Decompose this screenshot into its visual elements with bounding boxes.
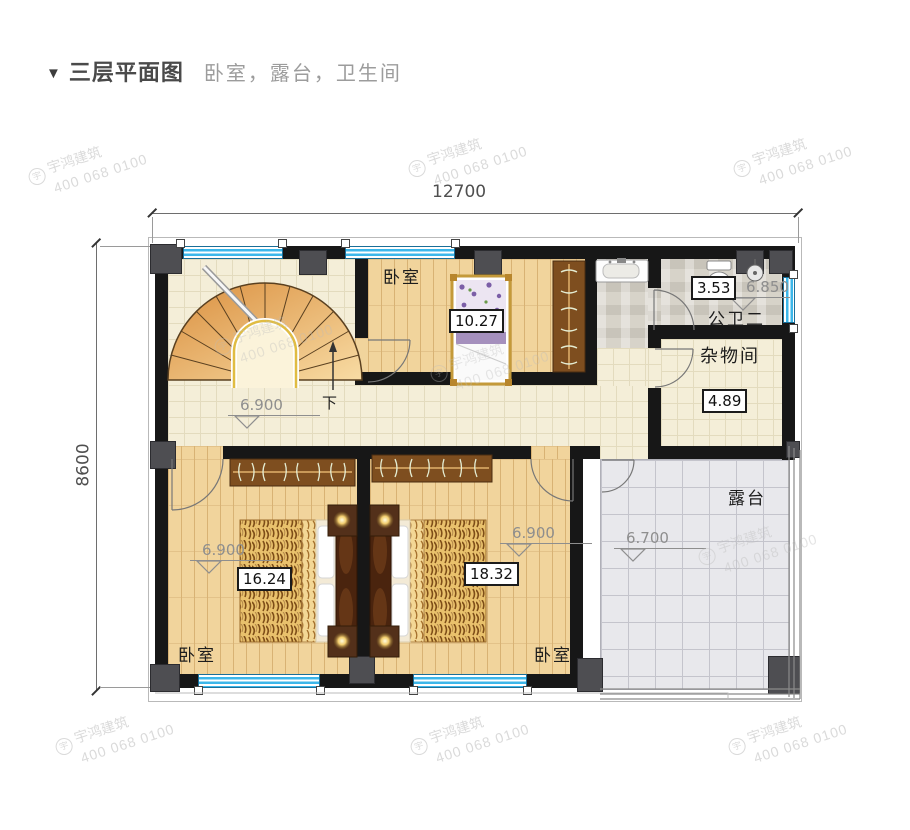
window-tick [789,270,798,279]
watermark: 宇宇鸿建筑 400 068 0100 [25,131,149,203]
title-marker-icon: ▼ [46,65,61,82]
window-tick [278,239,287,248]
wall-bedroomse-right [570,446,583,674]
floor-corridor [597,348,648,386]
window-tick [316,686,325,695]
wall-storage-left-top [648,339,661,348]
door-opening [168,446,223,459]
window [183,246,283,259]
window-tick [789,324,798,333]
room-label-storage: 杂物间 [700,342,760,368]
level-value: 6.900 [240,396,283,414]
level-marker-hall: 6.900 [228,396,320,416]
stair-direction-label: 下 [322,392,337,413]
pillar [474,250,502,275]
wall-storage-south [648,446,782,459]
dimension-line-top [152,213,798,214]
door-opening [648,348,661,388]
pillar [768,656,800,694]
pillar [786,441,800,458]
page-title: 三层平面图 [69,60,184,85]
dimension-extension [100,246,152,247]
watermark-logo-icon: 宇 [408,736,429,757]
watermark: 宇宇鸿建筑 400 068 0100 [52,701,176,773]
area-value-bathroom: 3.53 [691,276,736,300]
pillar [577,658,603,692]
door-opening [600,446,648,459]
watermark-logo-icon: 宇 [26,166,47,187]
window-tick [176,239,185,248]
room-label-bedroom-se: 卧室 [534,641,572,666]
window-tick [409,686,418,695]
watermark: 宇宇鸿建筑 400 068 0100 [407,701,531,773]
area-value-bedroom-sw: 16.24 [237,567,292,591]
pillar [150,664,180,692]
watermark: 宇宇鸿建筑 400 068 0100 [725,701,849,773]
dimension-extension [152,217,153,243]
wall-corridor-south [223,446,531,459]
dimension-line-left [96,243,97,691]
floorplan-page: { "header": { "marker": "▼", "title": "三… [0,0,910,830]
window-tick [451,239,460,248]
window-tick [341,239,350,248]
pillar [349,656,375,684]
watermark-logo-icon: 宇 [406,158,427,179]
wall-bedroom-divider [357,459,370,674]
watermark: 宇宇鸿建筑 400 068 0100 [730,123,854,195]
window-tick [194,686,203,695]
wall-wardrobe-vestibule [585,259,597,372]
window-tick [523,686,532,695]
window [198,674,320,688]
room-label-bedroom-sw: 卧室 [178,641,216,666]
dimension-extension [100,687,152,688]
level-value: 6.900 [512,524,555,542]
area-value-bedroom-top: 10.27 [449,309,504,333]
pillar [150,441,176,469]
floor-vestibule [597,259,648,348]
pillar [299,250,327,275]
door-opening [355,338,368,372]
level-marker-terrace: 6.700 [614,529,706,549]
door-opening [648,288,661,325]
window [413,674,527,688]
watermark-logo-icon: 宇 [726,736,747,757]
page-title-bar: ▼三层平面图卧室，露台，卫生间 [46,55,402,87]
dimension-extension [798,217,799,243]
level-marker-bedroom-se: 6.900 [500,524,592,544]
watermark-logo-icon: 宇 [53,736,74,757]
door-opening [531,446,575,459]
page-subtitle: 卧室，露台，卫生间 [204,63,402,85]
window [345,246,455,259]
pillar [736,250,764,274]
wall-bathroom-left [648,259,661,288]
room-label-terrace: 露台 [728,484,766,509]
wall-stair-bedroom [355,259,368,338]
dimension-height-label: 8600 [74,443,94,486]
room-label-bedroom-top: 卧室 [383,263,421,288]
watermark-logo-icon: 宇 [731,158,752,179]
pillar [150,244,182,274]
area-value-storage: 4.89 [702,389,747,413]
level-value: 6.850 [746,278,789,296]
level-marker-bedroom-sw: 6.900 [190,541,282,561]
wall-storage-left [648,388,661,446]
area-value-bedroom-se: 18.32 [464,562,519,586]
level-value: 6.700 [626,529,669,547]
level-value: 6.900 [202,541,245,559]
